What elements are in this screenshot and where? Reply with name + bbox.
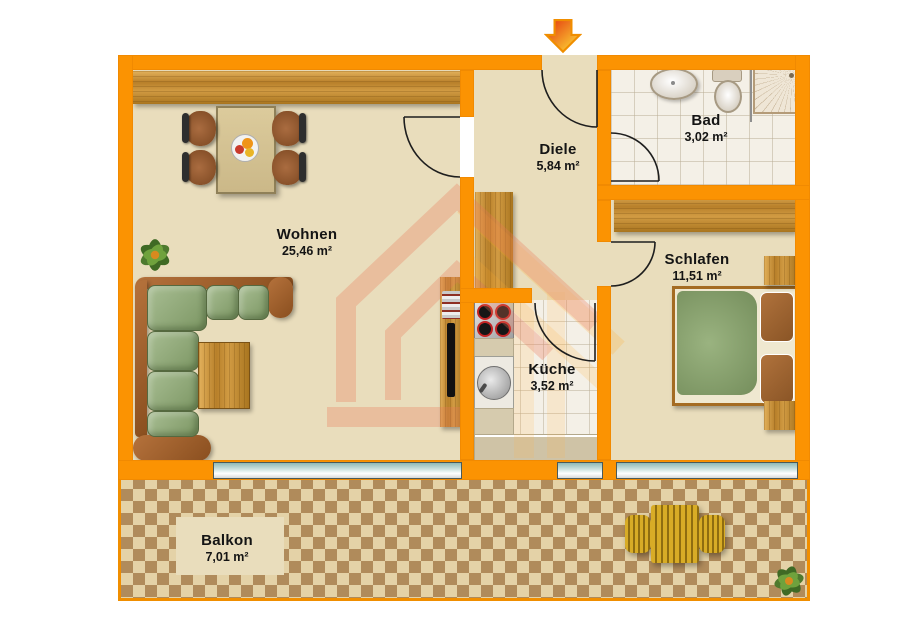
shelf-items	[442, 291, 461, 319]
kitchen-counter	[474, 338, 514, 358]
room-name: Wohnen	[277, 226, 338, 243]
toilet-bowl	[714, 80, 742, 113]
balkon-label: Balkon 7,01 m²	[201, 532, 253, 564]
burner	[495, 304, 511, 320]
wohnen-label: Wohnen 25,46 m²	[277, 226, 338, 258]
lounger-bed-slats	[651, 505, 699, 563]
lounger-roll-right	[699, 515, 725, 553]
outer-wall-left	[118, 55, 133, 480]
wohnen-sideboard	[133, 71, 460, 104]
entrance-opening-floor	[542, 55, 597, 70]
wohnen-window	[213, 462, 462, 479]
sink-drain	[671, 81, 675, 85]
chair-back	[299, 113, 306, 143]
kitchen-sink-unit	[474, 356, 514, 410]
room-area: 5,84 m²	[536, 159, 579, 173]
nightstand	[764, 256, 797, 285]
wall-wohnen-diele-lower	[460, 177, 474, 460]
sofa-armrest-right	[268, 277, 293, 318]
schlafen-door-opening-floor	[597, 242, 611, 286]
sofa-back-left	[135, 280, 147, 437]
room-name: Küche	[528, 361, 575, 378]
kitchen-counter-bottom	[474, 434, 599, 462]
tv-screen	[447, 323, 455, 397]
nightstand	[764, 401, 797, 430]
kitchen-counter	[474, 408, 514, 436]
outer-wall-top-left	[118, 55, 542, 70]
lounger-roll-left	[625, 515, 651, 553]
sofa-cushion	[238, 285, 269, 320]
balcony-plant-icon	[771, 563, 807, 599]
entrance-arrow-icon	[544, 18, 582, 56]
room-name: Schlafen	[665, 251, 730, 268]
wall-bad-bottom	[597, 185, 810, 200]
stove	[474, 301, 514, 340]
kitchen-sink-basin	[477, 366, 511, 400]
balcony-lounger	[625, 505, 725, 563]
shower-partition	[750, 70, 752, 122]
sofa-armrest-bottom	[133, 435, 211, 461]
room-name: Bad	[684, 112, 727, 129]
chair-back	[299, 152, 306, 182]
room-area: 25,46 m²	[277, 244, 338, 258]
fruit-plate	[231, 134, 259, 162]
room-area: 7,01 m²	[201, 550, 253, 564]
dining-chair	[185, 150, 216, 185]
bathroom-sink	[650, 68, 698, 100]
outer-wall-right	[795, 55, 810, 480]
room-area: 3,02 m²	[684, 130, 727, 144]
room-area: 11,51 m²	[665, 269, 730, 283]
schlafen-window	[616, 462, 798, 479]
kueche-label: Küche 3,52 m²	[528, 361, 575, 393]
bed-pillow	[760, 292, 794, 342]
outer-wall-top-right	[597, 55, 810, 70]
room-name: Balkon	[201, 532, 253, 549]
burner	[477, 304, 493, 320]
wall-diele-bad	[597, 70, 611, 185]
hallway-cabinet	[475, 192, 513, 288]
bed-pillow	[760, 354, 794, 404]
room-name: Diele	[536, 141, 579, 158]
burner	[477, 321, 493, 337]
sofa-corner-cushion	[147, 285, 207, 331]
dining-chair	[272, 150, 303, 185]
shower-drain	[789, 73, 794, 78]
sofa-cushion	[147, 411, 199, 437]
wall-schlafen-upper	[597, 200, 611, 242]
wall-kueche-top	[460, 288, 532, 303]
kueche-window	[557, 462, 603, 479]
sofa-cushion	[147, 371, 199, 411]
sofa-cushion	[206, 285, 239, 320]
wall-wohnen-diele-upper	[460, 70, 474, 117]
chair-back	[182, 152, 189, 182]
dining-chair	[272, 111, 303, 146]
wohnen-plant-icon	[136, 236, 174, 274]
sofa-cushion	[147, 331, 199, 371]
chair-back	[182, 113, 189, 143]
burner	[495, 321, 511, 337]
coffee-table	[198, 342, 250, 409]
bed-duvet	[677, 291, 757, 395]
diele-label: Diele 5,84 m²	[536, 141, 579, 173]
shower-tray	[753, 68, 799, 114]
schlafen-label: Schlafen 11,51 m²	[665, 251, 730, 283]
floorplan-canvas: Wohnen 25,46 m² Diele 5,84 m² Bad 3,02 m…	[0, 0, 900, 636]
wall-kueche-schlafen	[597, 286, 611, 460]
bad-label: Bad 3,02 m²	[684, 112, 727, 144]
fruit-yellow	[245, 148, 254, 157]
room-area: 3,52 m²	[528, 379, 575, 393]
dining-chair	[185, 111, 216, 146]
